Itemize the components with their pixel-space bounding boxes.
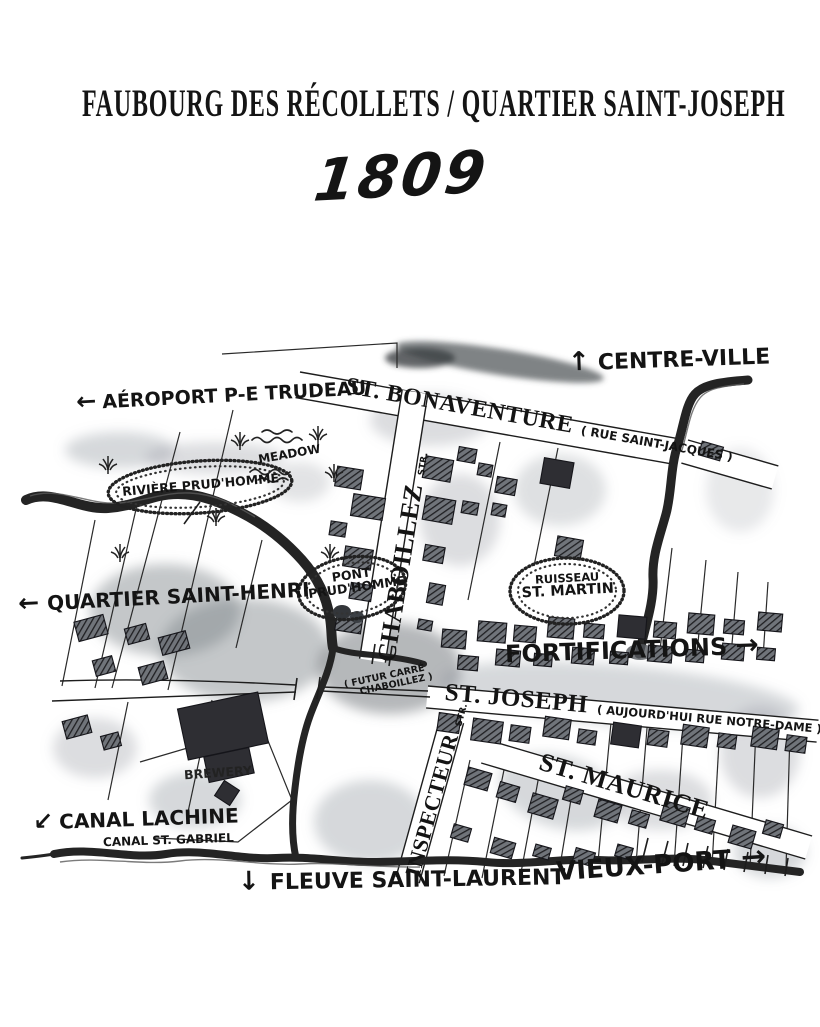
feature-ruisseau-st-martin: RUISSEAU ST. MARTIN (514, 569, 620, 602)
direction-label: FORTIFICATIONS (505, 633, 728, 669)
direction-aeroport: ←AÉROPORT P-E TRUDEAU (76, 374, 367, 414)
right-arrow-icon: → (740, 841, 767, 874)
street-st-joseph: ST. JOSEPH ( AUJOURD'HUI RUE NOTRE-DAME … (444, 680, 820, 739)
direction-quartier-saint-henri: ←QUARTIER SAINT-HENRI (18, 575, 311, 616)
feature-meadow: MEADOW (257, 443, 321, 466)
left-arrow-icon: ← (76, 389, 97, 415)
direction-label: VIEUX-PORT (555, 845, 732, 887)
feature-riviere-prudhomme: RIVIÈRE PRUD'HOMME (122, 471, 280, 498)
direction-centre-ville: ↑CENTRE-VILLE (568, 342, 771, 376)
direction-canal-lachine: ↙CANAL LACHINE (33, 802, 239, 834)
street-name: ST. MAURICE (536, 747, 712, 825)
direction-label: QUARTIER SAINT-HENRI (47, 577, 311, 615)
hand-drawn-map-page: FAUBOURG DES RÉCOLLETS / QUARTIER SAINT-… (0, 0, 820, 1027)
direction-label: AÉROPORT P-E TRUDEAU (102, 377, 367, 413)
street-bonaventure: ST. BONAVENTURE ( RUE SAINT-JACQUES ) (344, 374, 736, 467)
street-note: ( AUJOURD'HUI RUE NOTRE-DAME ) (596, 702, 820, 736)
direction-label: CANAL LACHINE (59, 803, 239, 833)
map-year: 1809 (311, 141, 492, 211)
street-chaboillez: CHABOILLEZ STR. (373, 450, 433, 664)
direction-label: CENTRE-VILLE (597, 344, 770, 375)
down-arrow-icon: ↓ (238, 868, 260, 896)
up-arrow-icon: ↑ (568, 349, 591, 377)
left-arrow-icon: ← (18, 590, 40, 617)
right-arrow-icon: → (735, 630, 759, 660)
down-left-arrow-icon: ↙ (33, 809, 54, 835)
map-title: FAUBOURG DES RÉCOLLETS / QUARTIER SAINT-… (82, 83, 738, 124)
direction-vieux-port: VIEUX-PORT→ (555, 841, 767, 887)
direction-fortifications: FORTIFICATIONS→ (505, 630, 760, 668)
street-inspecteur: INSPECTEUR STR. (401, 699, 471, 878)
feature-brewery: BREWERY (184, 764, 253, 782)
street-name: INSPECTEUR (400, 731, 463, 879)
ruisseau-line2: ST. MARTIN (515, 581, 621, 602)
street-st-maurice: ST. MAURICE (536, 748, 712, 824)
street-note: ( RUE SAINT-JACQUES ) (580, 423, 734, 464)
feature-canal-st-gabriel: CANAL ST. GABRIEL (103, 832, 234, 849)
street-suffix: STR. (454, 703, 470, 728)
street-name: ST. BONAVENTURE (344, 373, 576, 439)
street-suffix: STR. (417, 452, 430, 476)
